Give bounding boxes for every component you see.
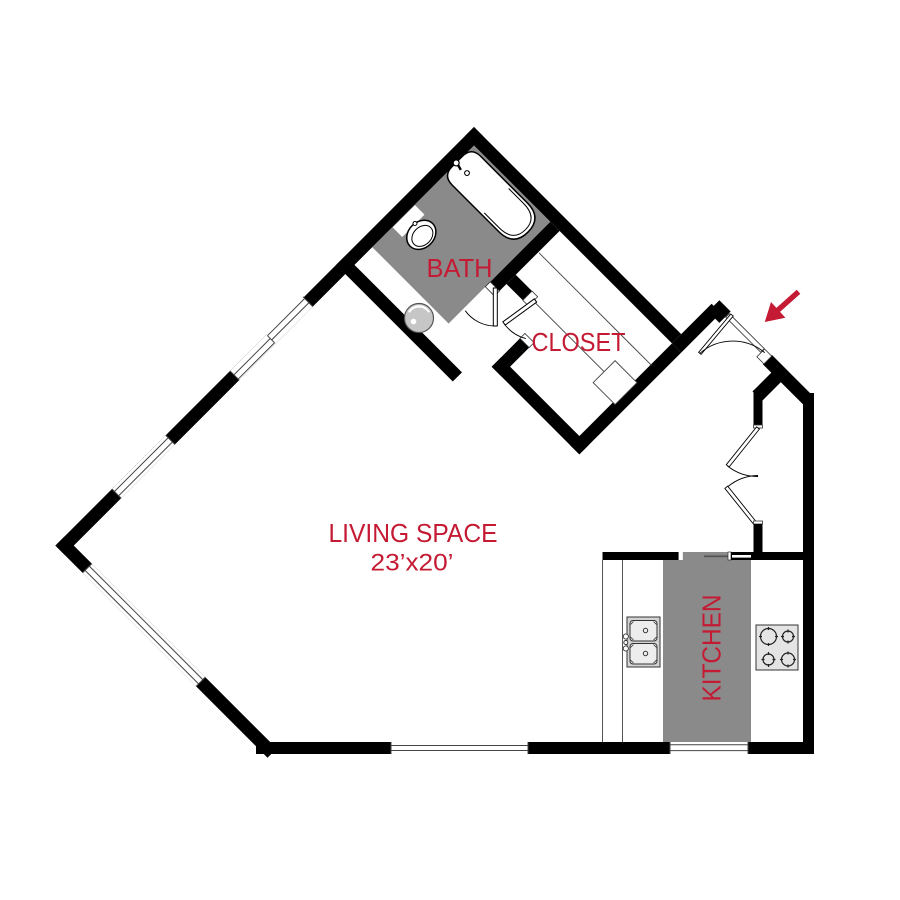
svg-text:BATH: BATH [427,253,493,283]
svg-text:LIVING SPACE: LIVING SPACE [329,518,498,548]
svg-text:23’x20’: 23’x20’ [371,550,454,577]
svg-text:CLOSET: CLOSET [532,327,626,357]
svg-text:KITCHEN: KITCHEN [697,595,727,702]
